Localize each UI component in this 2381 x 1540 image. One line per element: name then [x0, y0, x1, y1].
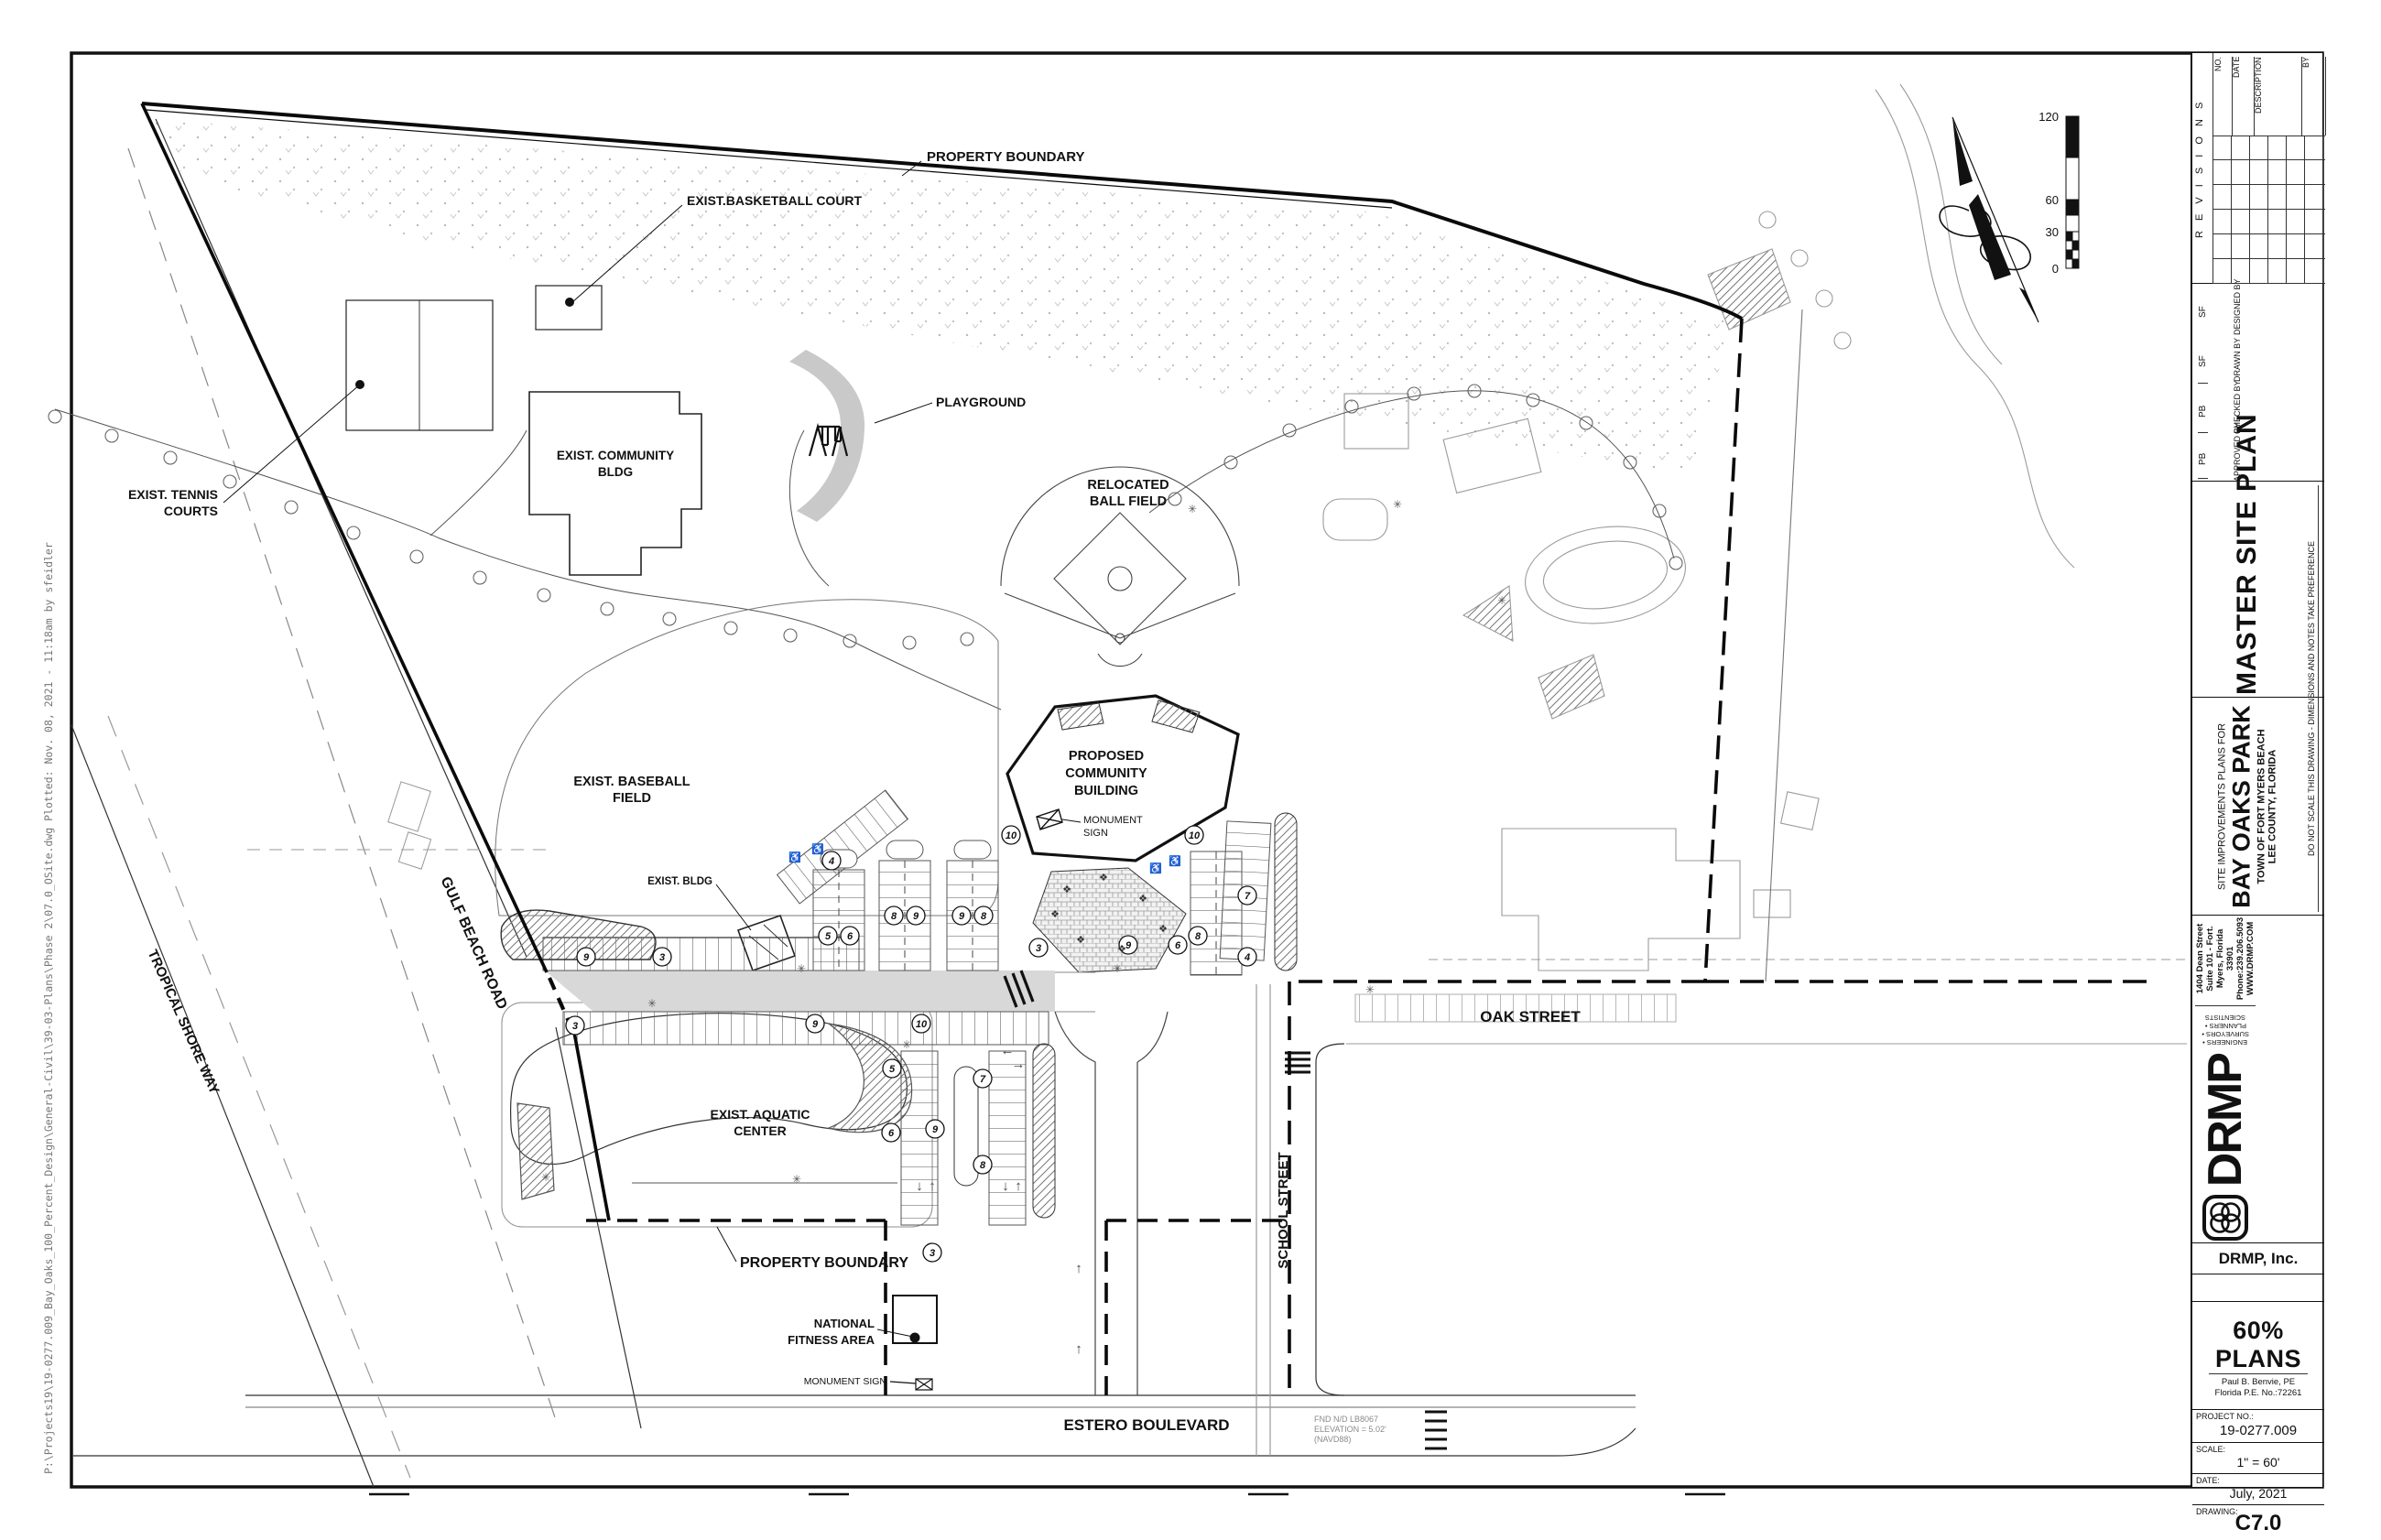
- svg-text:6: 6: [1175, 940, 1181, 951]
- svg-text:8: 8: [980, 1160, 986, 1171]
- label-aquatic-2: CENTER: [734, 1123, 787, 1138]
- designed-by-value: SF: [2198, 291, 2208, 333]
- svg-text:↑: ↑: [1015, 1178, 1022, 1194]
- svg-text:↑: ↑: [1075, 1341, 1082, 1357]
- svg-text:✳: ✳: [797, 962, 806, 975]
- title-block: R E V I S I O N S NO. DATE DESCRIPTION B…: [2191, 53, 2322, 1487]
- svg-text:✳: ✳: [1113, 962, 1122, 975]
- svg-text:❖: ❖: [1138, 894, 1147, 905]
- svg-text:✳: ✳: [647, 997, 657, 1010]
- svg-text:♿: ♿: [1169, 855, 1181, 867]
- firm-section: DRMP ENGINEERS • SURVEYORS • PLANNERS • …: [2192, 916, 2324, 1243]
- label-aquatic-1: EXIST. AQUATIC: [711, 1107, 810, 1122]
- checked-by-value: PB: [2198, 390, 2208, 433]
- svg-text:3: 3: [659, 952, 665, 963]
- project-name: BAY OAKS PARK: [2228, 700, 2256, 914]
- engineer-license: Florida P.E. No.:72261: [2192, 1388, 2324, 1398]
- svg-text:10: 10: [1189, 830, 1201, 841]
- label-school-street: SCHOOL STREET: [1276, 1152, 1291, 1268]
- status-stamp: 60% PLANS: [2192, 1317, 2324, 1373]
- date-row: DATE: July, 2021: [2192, 1474, 2324, 1505]
- label-tropical-shore-way: TROPICAL SHORE WAY: [145, 948, 223, 1097]
- svg-text:FND N/D LB8067: FND N/D LB8067: [1314, 1415, 1378, 1424]
- drawn-by-value: SF: [2198, 341, 2208, 384]
- svg-text:❖: ❖: [1050, 909, 1060, 920]
- label-proposed-2: COMMUNITY: [1065, 766, 1147, 781]
- revisions-col-by: BY: [2301, 57, 2326, 136]
- approved-by-value: PB: [2198, 439, 2208, 479]
- svg-text:♿: ♿: [811, 843, 824, 855]
- firm-logo-text: DRMP: [2204, 1054, 2247, 1187]
- svg-text:→: →: [1012, 1057, 1026, 1072]
- scale-value: 1" = 60': [2192, 1455, 2324, 1470]
- revisions-col-date: DATE: [2232, 57, 2255, 136]
- drawing-number: C7.0: [2192, 1511, 2324, 1536]
- spacer-row: [2192, 1274, 2324, 1302]
- svg-text:✳: ✳: [1365, 983, 1375, 996]
- drawn-by-label: DRAWN BY: [2233, 337, 2242, 383]
- project-no-row: PROJECT NO.: 19-0277.009: [2192, 1410, 2324, 1443]
- svg-text:✳: ✳: [541, 1171, 550, 1184]
- svg-text:4: 4: [828, 856, 834, 867]
- label-relocated-1: RELOCATED: [1087, 478, 1169, 493]
- north-arrow-icon: [1940, 117, 2039, 322]
- scale-tick-60: 60: [2046, 193, 2059, 207]
- label-baseball-2: FIELD: [613, 791, 651, 806]
- svg-text:9: 9: [1125, 940, 1132, 951]
- svg-text:8: 8: [1195, 931, 1201, 942]
- svg-text:3: 3: [1036, 943, 1041, 954]
- label-monument-bottom: MONUMENT SIGN: [804, 1376, 886, 1387]
- svg-text:5: 5: [889, 1064, 896, 1075]
- revisions-col-no: NO.: [2213, 57, 2233, 136]
- label-tennis-2: COURTS: [164, 504, 218, 518]
- date-value: July, 2021: [2192, 1486, 2324, 1501]
- svg-text:3: 3: [930, 1248, 935, 1259]
- status-section: 60% PLANS Paul B. Benvie, PE Florida P.E…: [2192, 1302, 2324, 1410]
- basketball-court: [536, 286, 602, 330]
- label-basketball: EXIST.BASKETBALL COURT: [687, 193, 863, 208]
- svg-text:♿: ♿: [788, 851, 801, 863]
- svg-text:9: 9: [812, 1019, 819, 1030]
- monument-sign-symbol-bottom: [890, 1379, 932, 1390]
- svg-text:❖: ❖: [1117, 944, 1126, 955]
- label-proposed-3: BUILDING: [1074, 784, 1138, 798]
- survey-note: FND N/D LB8067 ELEVATION = 5.02' (NAVD88…: [1314, 1415, 1386, 1444]
- label-property-boundary-bottom: PROPERTY BOUNDARY: [740, 1255, 908, 1271]
- engineer-name: Paul B. Benvie, PE: [2192, 1377, 2324, 1387]
- scale-bar: 120 60 30 0: [2039, 110, 2079, 276]
- svg-text:↓: ↓: [1002, 1178, 1009, 1194]
- label-oak-street: OAK STREET: [1480, 1008, 1581, 1025]
- drmp-logo-icon: [2202, 1194, 2249, 1242]
- svg-text:9: 9: [583, 952, 590, 963]
- svg-text:8: 8: [981, 911, 987, 922]
- playground-area: [789, 350, 864, 522]
- svg-text:3: 3: [572, 1021, 578, 1032]
- label-estero-boulevard: ESTERO BOULEVARD: [1063, 1416, 1229, 1434]
- firm-name: DRMP, Inc.: [2219, 1250, 2299, 1268]
- svg-text:(NAVD88): (NAVD88): [1314, 1435, 1351, 1444]
- scale-tick-30: 30: [2046, 225, 2059, 239]
- sheet-title-section: MASTER SITE PLAN: [2192, 482, 2324, 698]
- label-monument-1: MONUMENT: [1083, 815, 1143, 826]
- svg-text:✳: ✳: [1188, 503, 1197, 515]
- label-exist-bldg: EXIST. BLDG: [647, 876, 712, 887]
- svg-text:6: 6: [847, 931, 853, 942]
- label-fitness-2: FITNESS AREA: [788, 1333, 875, 1347]
- scale-row: SCALE: 1" = 60': [2192, 1443, 2324, 1474]
- svg-text:5: 5: [825, 931, 832, 942]
- svg-text:10: 10: [916, 1019, 928, 1030]
- svg-text:♿: ♿: [1149, 862, 1162, 874]
- svg-text:↑: ↑: [1075, 1261, 1082, 1276]
- scale-tick-120: 120: [2039, 110, 2059, 124]
- sheet-title: MASTER SITE PLAN: [2232, 484, 2263, 695]
- community-building: [529, 392, 701, 575]
- svg-text:↓: ↓: [916, 1178, 923, 1194]
- scale-label: SCALE:: [2196, 1445, 2225, 1454]
- project-section: SITE IMPROVEMENTS PLANS FOR BAY OAKS PAR…: [2192, 698, 2324, 916]
- paver-plaza: [1033, 868, 1186, 972]
- firm-tagline: ENGINEERS • SURVEYORS • PLANNERS • SCIEN…: [2198, 1014, 2253, 1047]
- svg-text:7: 7: [1245, 891, 1251, 902]
- project-line1: SITE IMPROVEMENTS PLANS FOR: [2217, 700, 2228, 914]
- svg-text:✳: ✳: [902, 1038, 911, 1051]
- svg-text:❖: ❖: [1099, 873, 1108, 884]
- label-community-1: EXIST. COMMUNITY: [557, 449, 674, 462]
- svg-text:✳: ✳: [792, 1173, 801, 1186]
- svg-text:❖: ❖: [1158, 924, 1168, 935]
- revisions-title: R E V I S I O N S: [2194, 71, 2205, 266]
- revisions-section: R E V I S I O N S NO. DATE DESCRIPTION B…: [2192, 53, 2324, 284]
- firm-address1: 1404 Dean Street Suite 101 - Fort. Myers…: [2195, 917, 2235, 1000]
- svg-text:8: 8: [891, 911, 897, 922]
- svg-text:↑: ↑: [929, 1178, 936, 1194]
- svg-text:6: 6: [888, 1128, 895, 1139]
- project-line3: TOWN OF FORT MYERS BEACH: [2256, 700, 2267, 914]
- project-no-label: PROJECT NO.:: [2196, 1412, 2254, 1421]
- svg-text:✳: ✳: [1497, 594, 1506, 607]
- date-label: DATE:: [2196, 1476, 2220, 1485]
- label-relocated-2: BALL FIELD: [1090, 494, 1167, 509]
- drawing-row: DRAWING: C7.0: [2192, 1505, 2324, 1540]
- label-community-2: BLDG: [598, 465, 633, 479]
- svg-text:ELEVATION = 5.02': ELEVATION = 5.02': [1314, 1425, 1386, 1434]
- label-playground: PLAYGROUND: [936, 395, 1026, 409]
- label-tennis-1: EXIST. TENNIS: [128, 487, 218, 502]
- plan-sheet: P:\Projects19\19-0277.009_Bay_Oaks_100_P…: [0, 0, 2381, 1540]
- svg-text:✳: ✳: [1393, 498, 1402, 511]
- svg-text:9: 9: [959, 911, 965, 922]
- designed-by-label: DESIGNED BY: [2233, 286, 2242, 335]
- project-line4: LEE COUNTY, FLORIDA: [2267, 700, 2278, 914]
- svg-text:❖: ❖: [1062, 884, 1071, 895]
- buildings: [346, 286, 795, 971]
- svg-text:9: 9: [913, 911, 919, 922]
- firm-address2: Phone:239.206.5093 WWW.DRMP.COM: [2235, 917, 2256, 1000]
- label-baseball-1: EXIST. BASEBALL: [573, 775, 690, 789]
- scale-tick-0: 0: [2052, 262, 2059, 276]
- svg-text:9: 9: [932, 1124, 939, 1135]
- revisions-col-description: DESCRIPTION: [2254, 57, 2302, 136]
- site-plan-drawing: PROPERTY BOUNDARY EXIST.BASKETBALL COURT…: [0, 0, 2381, 1540]
- label-proposed-1: PROPOSED: [1069, 749, 1144, 764]
- project-no-value: 19-0277.009: [2192, 1423, 2324, 1438]
- svg-text:❖: ❖: [1076, 935, 1085, 946]
- label-property-boundary-top: PROPERTY BOUNDARY: [927, 149, 1085, 165]
- firm-name-row: DRMP, Inc.: [2192, 1243, 2324, 1274]
- do-not-scale-note: DO NOT SCALE THIS DRAWING - DIMENSIONS A…: [2307, 485, 2319, 912]
- svg-text:10: 10: [1006, 830, 1017, 841]
- label-fitness-1: NATIONAL: [814, 1317, 875, 1330]
- svg-text:7: 7: [980, 1074, 986, 1085]
- label-monument-2: SIGN: [1083, 828, 1108, 839]
- svg-text:4: 4: [1244, 952, 1250, 963]
